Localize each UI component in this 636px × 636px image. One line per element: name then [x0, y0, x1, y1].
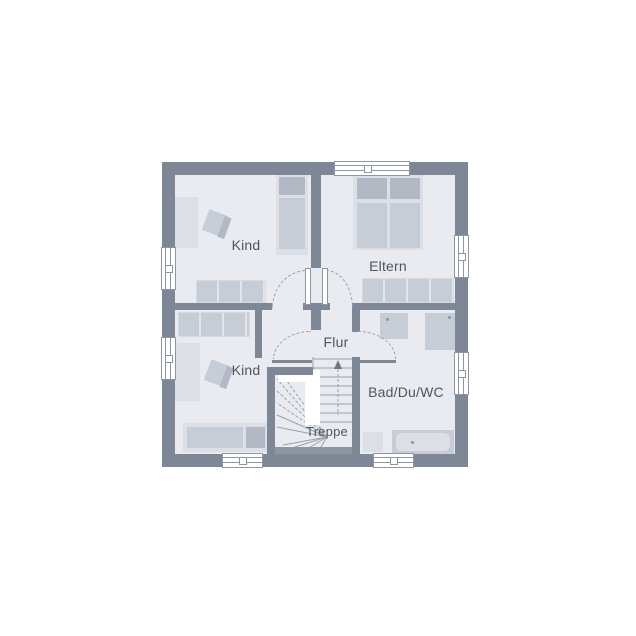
wall-kind2-flur: [255, 310, 262, 358]
bad-bathtub-drain-dot: [411, 441, 414, 444]
window-bottom-left: [222, 453, 263, 468]
door-arc-kind-top: [272, 270, 307, 308]
window-handle: [364, 165, 372, 173]
room-label-bad: Bad/Du/WC: [368, 384, 444, 400]
window-top: [334, 161, 410, 176]
bad-wc: [363, 432, 383, 452]
window-left-lower: [161, 337, 176, 380]
stair-bottom-landing: [275, 447, 352, 454]
eltern-wardrobe: [362, 278, 454, 303]
kind2-bed-pillow: [246, 427, 265, 448]
window-left-upper: [161, 247, 176, 290]
eltern-pillow-left: [357, 178, 387, 199]
wall-outer-right: [455, 175, 468, 454]
kind2-bed-mattress: [187, 427, 243, 448]
stair-direction-arrow: [334, 360, 342, 415]
room-label-treppe: Treppe: [306, 424, 348, 439]
wall-outer-top: [162, 162, 468, 175]
wall-kind-eltern-divider: [311, 175, 321, 268]
wall-stair-top: [267, 367, 313, 375]
bad-shower-dot: [448, 316, 451, 319]
window-handle: [239, 457, 247, 465]
wall-outer-bottom: [162, 454, 468, 467]
wall-flur-stub: [311, 310, 321, 330]
window-handle: [458, 253, 466, 261]
bad-sink: [380, 313, 408, 339]
room-label-kind-top: Kind: [232, 237, 261, 253]
stair-void: [278, 370, 320, 425]
threshold-left: [272, 360, 312, 363]
room-label-eltern: Eltern: [369, 258, 407, 274]
door-arc-eltern: [326, 270, 353, 308]
wall-stair-left: [267, 367, 275, 454]
window-handle: [165, 265, 173, 273]
bad-sink-dot: [386, 318, 389, 321]
floor-plan: Kind Eltern Flur Kind Bad/Du/WC Treppe: [162, 162, 468, 467]
window-right-lower: [454, 352, 469, 395]
eltern-pillow-right: [390, 178, 420, 199]
door-leaf-kind-top: [305, 268, 311, 305]
kind2-desk: [172, 343, 200, 401]
bad-bathtub-basin: [396, 433, 450, 451]
kind1-bed-mattress: [279, 198, 305, 249]
kind2-wardrobe-top: [178, 312, 250, 337]
door-leaf-eltern: [322, 268, 328, 305]
room-label-kind-bottom: Kind: [232, 362, 261, 378]
window-handle: [390, 457, 398, 465]
kind1-bed-pillow: [279, 177, 305, 195]
wall-mid-right: [352, 303, 455, 310]
wall-mid-left: [175, 303, 272, 310]
window-handle: [165, 355, 173, 363]
wall-bad-left-upper: [352, 305, 360, 332]
kind2-chair: [204, 359, 230, 387]
window-right-upper: [454, 235, 469, 278]
door-arc-kind-bottom: [273, 331, 311, 359]
window-handle: [458, 370, 466, 378]
threshold-right: [360, 360, 396, 363]
window-bottom-right: [373, 453, 414, 468]
kind1-chair: [202, 209, 228, 237]
wall-stair-right: [352, 357, 360, 454]
kind1-wardrobe-left: [172, 197, 198, 248]
bad-bathtub: [392, 430, 454, 454]
eltern-mattress-left: [357, 203, 387, 248]
eltern-mattress-right: [390, 203, 420, 248]
kind1-wardrobe-bottom: [196, 280, 266, 303]
wall-outer-left: [162, 175, 175, 454]
room-label-flur: Flur: [324, 334, 349, 350]
